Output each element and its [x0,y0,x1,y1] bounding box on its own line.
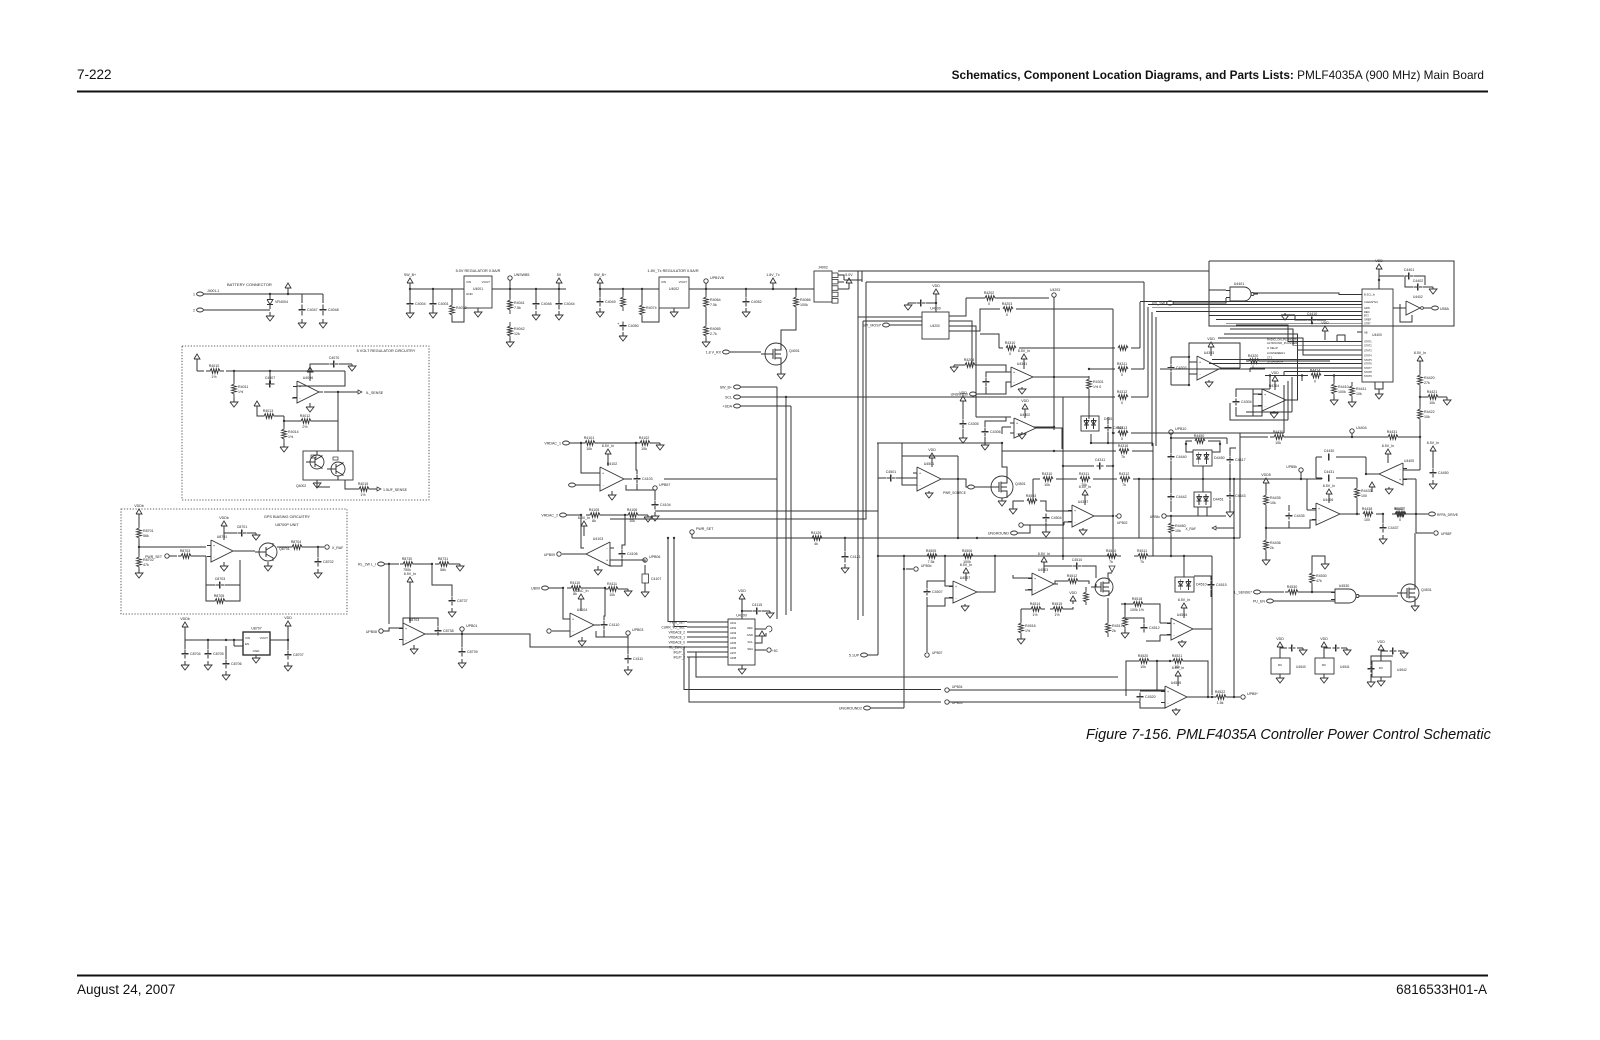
svg-text:R4074: R4074 [646,306,657,310]
svg-text:R4312: R4312 [1119,472,1130,476]
svg-text:8.5V_In: 8.5V_In [1382,444,1394,448]
svg-text:Q4002: Q4002 [296,484,306,488]
svg-text:VIN: VIN [661,280,666,284]
svg-text:C8704: C8704 [190,652,201,656]
svg-text:R4420: R4420 [1424,376,1435,380]
svg-text:U4102: U4102 [607,462,618,466]
svg-text:SCL: SCL [725,396,732,400]
svg-text:X_RAF: X_RAF [332,546,343,550]
svg-text:VR4004: VR4004 [275,300,288,304]
svg-text:U8701: U8701 [217,535,228,539]
svg-text:GND: GND [466,292,474,296]
svg-text:10k: 10k [1044,483,1050,487]
svg-text:7k: 7k [1140,560,1144,564]
svg-text:RL_2W L_I: RL_2W L_I [358,563,376,567]
svg-text:C4104: C4104 [660,503,671,507]
svg-text:8.5V_In: 8.5V_In [578,516,590,520]
svg-text:PWR_SET: PWR_SET [696,527,714,531]
svg-text:U4100: U4100 [736,614,747,618]
svg-text:RX_SW: RX_SW [1152,302,1165,306]
svg-text:R4516: R4516 [1025,624,1036,628]
svg-text:VDD: VDD [1021,399,1029,403]
svg-text:R4512: R4512 [1067,574,1078,578]
svg-text:UPB04: UPB04 [952,685,963,689]
svg-text:R4101: R4101 [584,436,595,440]
svg-text:7k: 7k [1109,560,1113,564]
svg-text:R4065: R4065 [710,327,721,331]
svg-text:C4401: C4401 [1404,268,1415,272]
svg-text:UB09: UB09 [531,587,540,591]
svg-text:R4072: R4072 [456,306,467,310]
svg-text:D4451: D4451 [1213,498,1224,502]
svg-text:R4506: R4506 [962,549,973,553]
svg-text:5.0V REGULATOR 0.5A/R: 5.0V REGULATOR 0.5A/R [456,269,501,273]
svg-text:12k: 12k [514,332,520,336]
svg-text:X_RAF: X_RAF [1185,527,1196,531]
svg-text:10k: 10k [1429,401,1435,405]
svg-text:1.5k: 1.5k [1217,701,1224,705]
svg-text:8.5V_In: 8.5V_In [960,563,972,567]
svg-text:VIN: VIN [245,636,250,640]
svg-text:5 VOLT REGULATOR CIRCUITRY: 5 VOLT REGULATOR CIRCUITRY [357,349,416,353]
svg-text:UPB01: UPB01 [466,624,477,628]
svg-text:6816533H01-A: 6816533H01-A [1396,982,1487,997]
svg-text:PWR_SOURCE: PWR_SOURCE [943,491,966,495]
svg-text:C4301: C4301 [1113,426,1124,430]
svg-text:VDD: VDD [1069,591,1077,595]
svg-text:C4435: C4435 [1294,514,1305,518]
svg-text:U4504: U4504 [1177,613,1188,617]
svg-text:STAT5: STAT5 [1364,358,1372,362]
svg-text:R4310: R4310 [1042,472,1053,476]
svg-text:VDD: VDD [1375,259,1383,263]
svg-text:VOUT: VOUT [679,280,688,284]
svg-text:U4104: U4104 [577,608,588,612]
svg-text:C4306: C4306 [990,430,1001,434]
svg-text:R4433: R4433 [1361,489,1372,493]
svg-text:R4204: R4204 [964,358,975,362]
svg-text:R8705: R8705 [214,594,225,598]
svg-text:8.5V_In: 8.5V_In [602,444,614,448]
svg-text:1%: 1% [1025,629,1031,633]
svg-text:Q8701: Q8701 [279,547,290,551]
svg-text:AIN8: AIN8 [730,656,737,660]
svg-text:GND: GND [747,633,753,637]
svg-text:AIN5: AIN5 [730,641,737,645]
svg-text:C4512: C4512 [1149,626,1160,630]
svg-text:2.7k: 2.7k [710,332,717,336]
svg-text:R4110: R4110 [570,581,580,585]
svg-text:0: 0 [988,302,990,306]
svg-text:UPB09: UPB09 [544,553,555,557]
svg-text:1.8V_Tx REGULATOR 0.5A/R: 1.8V_Tx REGULATOR 0.5A/R [647,269,698,273]
svg-text:C4304: C4304 [1241,400,1252,404]
svg-text:SW_B+: SW_B+ [404,273,416,277]
svg-text:C8737: C8737 [457,599,468,603]
svg-text:0: 0 [1399,518,1401,522]
svg-text:AIN4: AIN4 [730,636,737,640]
svg-text:C4111: C4111 [633,657,643,661]
svg-text:R4514: R4514 [1030,602,1041,606]
svg-text:1.8 V_RX: 1.8 V_RX [706,351,722,355]
svg-text:R4530: R4530 [1316,574,1327,578]
svg-text:R8703: R8703 [180,549,191,553]
svg-text:VDDb: VDDb [180,617,190,621]
svg-text:VDD: VDD [959,391,967,395]
svg-text:U8700P UNIT: U8700P UNIT [275,523,299,527]
svg-text:R4438: R4438 [1362,507,1373,511]
svg-text:2k: 2k [1270,546,1274,550]
svg-text:C4510: C4510 [1072,558,1083,562]
svg-text:PWR_SET: PWR_SET [145,555,163,559]
svg-text:R4014: R4014 [288,430,299,434]
svg-text:VDD: VDD [932,284,940,288]
svg-text:0: 0 [1121,373,1123,377]
svg-text:5V: 5V [557,273,562,277]
svg-text:AIN2: AIN2 [730,626,737,630]
svg-text:8.5V_In: 8.5V_In [1038,552,1050,556]
svg-text:C8738: C8738 [443,629,454,633]
svg-text:1%: 1% [1054,613,1060,617]
svg-text:STAT2: STAT2 [1364,344,1372,348]
svg-text:R4312: R4312 [1117,390,1128,394]
svg-text:VDD: VDD [1207,337,1215,341]
svg-text:R4460: R4460 [1175,524,1186,528]
svg-text:56k: 56k [440,568,446,572]
svg-text:2%: 2% [302,425,308,429]
svg-text:C4052: C4052 [751,300,762,304]
svg-text:R4316: R4316 [1118,444,1129,448]
svg-text:EN: EN [245,642,249,646]
svg-text:R4437: R4437 [1395,507,1406,511]
svg-text:C4303: C4303 [1176,366,1187,370]
svg-text:SPI_MOSI*: SPI_MOSI* [863,324,882,328]
svg-text:R4522: R4522 [1215,690,1226,694]
svg-text:VDD: VDD [928,448,936,452]
svg-text:C8702: C8702 [323,560,334,564]
svg-text:UPB02: UPB02 [1117,521,1128,525]
svg-text:UNSWB5: UNSWB5 [514,273,529,277]
svg-text:10k: 10k [629,519,635,523]
svg-text:VDD: VDD [1377,640,1385,644]
svg-text:C8705: C8705 [213,652,224,656]
svg-text:VRDAC_1: VRDAC_1 [544,442,561,446]
svg-text:UPB08: UPB08 [366,630,377,634]
svg-text:C8701: C8701 [237,525,248,529]
svg-text:10k: 10k [1356,392,1362,396]
svg-text:U4540: U4540 [1296,665,1306,669]
svg-text:R4436: R4436 [1270,541,1281,545]
svg-text:UPB5*: UPB5* [1247,692,1258,696]
svg-text:AIN7: AIN7 [730,651,737,655]
svg-text:J4002: J4002 [818,266,828,270]
svg-text:7k: 7k [1121,455,1125,459]
svg-text:10k: 10k [586,447,592,451]
svg-text:UB5A: UB5A [1440,307,1450,311]
svg-text:10k: 10k [1174,665,1180,669]
svg-text:R4013: R4013 [263,409,274,413]
svg-text:R4011: R4011 [238,385,248,389]
svg-text:R8730: R8730 [402,557,413,561]
svg-text:2: 2 [193,309,195,313]
svg-text:U4400: U4400 [1372,333,1382,337]
svg-text:IL_SENSE*: IL_SENSE* [1233,591,1252,595]
svg-text:U4404: U4404 [1356,426,1367,430]
svg-text:UPB07: UPB07 [932,651,943,655]
svg-text:U4001: U4001 [473,287,483,291]
svg-text:U4406: U4406 [1323,498,1334,502]
svg-text:SW_B+: SW_B+ [720,386,732,390]
svg-text:VRDAC_2: VRDAC_2 [541,514,558,518]
svg-text:VOUT: VOUT [482,280,491,284]
svg-text:C4507: C4507 [932,590,943,594]
svg-text:R4066: R4066 [800,298,811,302]
svg-text:SW_B+: SW_B+ [594,273,606,277]
svg-text:RFPA_DRIVE: RFPA_DRIVE [1437,513,1459,517]
svg-text:U4307: U4307 [1078,500,1089,504]
svg-text:100: 100 [1364,518,1370,522]
svg-text:IRL/P_L: IRL/P_L [673,651,685,655]
svg-text:R4111: R4111 [607,582,617,586]
svg-text:U8707: U8707 [251,627,262,631]
svg-text:10k: 10k [609,593,615,597]
svg-text:C4305: C4305 [968,422,979,426]
svg-text:D4450: D4450 [1214,456,1225,460]
svg-text:1.5UF_SENSE: 1.5UF_SENSE [383,488,408,492]
svg-text:C4440: C4440 [1176,455,1187,459]
svg-text:VRDAC8_0: VRDAC8_0 [669,641,686,645]
svg-text:STAT7: STAT7 [1364,366,1372,370]
svg-text:UPB10: UPB10 [1175,427,1186,431]
svg-text:+SDA: +SDA [723,405,733,409]
svg-text:UPB03: UPB03 [632,628,643,632]
svg-text:IRL/P_2: IRL/P_2 [673,656,685,660]
svg-text:27k: 27k [1424,381,1430,385]
svg-text:C4103: C4103 [642,477,653,481]
svg-text:C4431: C4431 [1324,470,1335,474]
svg-text:R8701: R8701 [143,529,154,533]
svg-text:STRT: STRT [1364,322,1371,326]
svg-text:UPB0b: UPB0b [921,564,932,568]
svg-text:STAT6: STAT6 [1364,362,1372,366]
svg-text:GREF: GREF [1364,318,1372,322]
svg-text:1%: 1% [238,390,244,394]
svg-text:C4110: C4110 [609,623,619,627]
svg-text:UPB57: UPB57 [659,483,670,487]
svg-text:STAT8: STAT8 [1364,370,1372,374]
svg-text:C4450: C4450 [1438,471,1449,475]
svg-text:R4503: R4503 [1026,494,1037,498]
svg-text:C4443: C4443 [1235,494,1246,498]
svg-text:UPB5c: UPB5c [1150,515,1161,519]
svg-text:U4200: U4200 [930,307,941,311]
svg-text:R4521: R4521 [1172,654,1183,658]
svg-text:U4541: U4541 [1340,665,1350,669]
svg-text:ALTROUND_PLUNGER: ALTROUND_PLUNGER [1267,341,1297,345]
svg-text:8.5V_In: 8.5V_In [404,572,416,576]
svg-text:R4421: R4421 [1427,390,1438,394]
svg-text:AB: AB [1364,330,1368,334]
svg-text:R4064: R4064 [710,298,721,302]
svg-text:R4012: R4012 [300,414,311,418]
svg-text:0: 0 [1252,365,1254,369]
svg-text:100k 1%: 100k 1% [1130,608,1145,612]
svg-text:R4203: R4203 [1002,302,1013,306]
svg-text:U4002: U4002 [669,287,679,291]
svg-text:R4450: R4450 [1194,434,1205,438]
svg-text:GPS BIASING CIRCUITRY: GPS BIASING CIRCUITRY [264,515,311,519]
svg-text:7k: 7k [1122,483,1126,487]
svg-text:GRN: GRN [1364,306,1370,310]
svg-text:U4303: U4303 [1204,351,1215,355]
svg-text:R4320: R4320 [1248,354,1259,358]
svg-text:10k: 10k [1140,665,1146,669]
svg-text:R4515: R4515 [1052,602,1063,606]
svg-text:J4001-1: J4001-1 [207,289,219,293]
svg-text:C4001: C4001 [438,302,449,306]
svg-text:10k: 10k [1275,441,1281,445]
svg-text:U4402: U4402 [1413,295,1423,299]
svg-text:BT2: BT2 [1364,314,1369,318]
svg-text:VRDAC8_2: VRDAC8_2 [669,631,686,635]
svg-text:LCD/GREEN1: LCD/GREEN1 [1267,351,1285,355]
svg-text:8k: 8k [592,519,596,523]
svg-text:VDD: VDD [738,589,746,593]
svg-text:8.5V_In: 8.5V_In [1178,598,1190,602]
svg-text:5.0V: 5.0V [845,273,853,277]
svg-text:10k: 10k [1424,415,1430,419]
svg-text:R4505: R4505 [926,549,937,553]
svg-text:R4414: R4414 [1310,369,1321,373]
svg-text:0: 0 [1009,352,1011,356]
svg-text:C4106: C4106 [627,552,638,556]
svg-text:4k: 4k [814,542,818,546]
svg-text:VDD: VDD [1320,637,1328,641]
svg-text:100k: 100k [1338,390,1346,394]
svg-text:R4410: R4410 [1338,385,1349,389]
svg-text:10k: 10k [641,447,647,451]
svg-text:U4401: U4401 [1234,282,1245,286]
svg-text:STAT1: STAT1 [1364,340,1372,344]
svg-text:C8739: C8739 [467,650,478,654]
svg-text:BATTERY CONNECTOR: BATTERY CONNECTOR [227,282,272,287]
svg-text:R4041: R4041 [514,301,525,305]
svg-text:U4301: U4301 [1017,362,1028,366]
svg-text:R4042: R4042 [514,327,525,331]
svg-text:C4049: C4049 [605,300,616,304]
svg-text:R4517: R4517 [1112,624,1123,628]
svg-text:R8704: R8704 [291,540,302,544]
svg-text:R4106: R4106 [627,508,638,512]
svg-text:100k: 100k [800,303,808,307]
svg-text:R4105: R4105 [589,508,600,512]
svg-text:70k: 70k [1081,483,1087,487]
svg-text:C8703: C8703 [215,577,226,581]
svg-text:C4044: C4044 [564,302,575,306]
svg-text:1%: 1% [360,493,366,497]
svg-text:R4520: R4520 [1138,654,1149,658]
svg-text:C4050: C4050 [628,324,639,328]
svg-text:August 24, 2007: August 24, 2007 [77,982,175,997]
svg-text:47k: 47k [1316,579,1322,583]
svg-text:0: 0 [1006,313,1008,317]
svg-text:R4431: R4431 [1387,430,1398,434]
svg-text:C4430: C4430 [1324,449,1335,453]
svg-text:0: 0 [1314,380,1316,384]
svg-text:RL_2W L_I: RL_2W L_I [669,646,685,650]
svg-text:47k: 47k [143,563,149,567]
svg-text:U4200: U4200 [930,324,940,328]
svg-text:R4015: R4015 [358,482,369,486]
svg-text:AIN6: AIN6 [730,646,737,650]
svg-text:8.5V_In: 8.5V_In [1427,441,1439,445]
svg-text:1: 1 [193,293,195,297]
svg-text:R4310: R4310 [1005,341,1016,345]
svg-text:C4107: C4107 [651,577,661,581]
svg-text:C4501: C4501 [886,470,897,474]
svg-text:Q4531: Q4531 [1421,588,1432,592]
svg-text:VOUT: VOUT [260,636,269,640]
svg-text:C4311: C4311 [1095,458,1105,462]
svg-text:R4435: R4435 [1270,496,1281,500]
svg-text:STAT9: STAT9 [1364,374,1372,378]
svg-text:7-222: 7-222 [77,67,112,82]
svg-text:VRDAC8_1: VRDAC8_1 [669,636,686,640]
svg-text:+5C: +5C [772,649,779,653]
svg-text:0: 0 [1121,437,1123,441]
svg-text:R4422: R4422 [1424,410,1435,414]
svg-text:Schematics, Component Location: Schematics, Component Location Diagrams,… [952,68,1484,82]
svg-text:1% 0: 1% 0 [1093,385,1101,389]
svg-text:7.5k: 7.5k [710,303,717,307]
svg-text:C4121: C4121 [850,555,861,559]
svg-text:1%: 1% [1032,613,1038,617]
svg-text:VDD: VDD [284,616,292,620]
svg-text:2k: 2k [1112,629,1116,633]
svg-text:C4115: C4115 [752,603,762,607]
svg-text:Figure 7-156. PMLF4035A Contro: Figure 7-156. PMLF4035A Controller Power… [1086,727,1492,743]
svg-text:C8706: C8706 [231,662,242,666]
svg-text:CLEAN/T21: CLEAN/T21 [1364,300,1378,304]
svg-text:Q4501: Q4501 [1015,482,1026,486]
svg-text:C4004: C4004 [415,302,426,306]
svg-text:U4501: U4501 [924,462,935,466]
svg-text:C4437: C4437 [1388,526,1399,530]
svg-text:5.1UP: 5.1UP [849,654,860,658]
svg-text:UPB1V8: UPB1V8 [710,276,724,280]
svg-text:D4510: D4510 [1196,583,1207,587]
svg-text:0: 0 [1121,401,1123,405]
svg-text:UPB5F: UPB5F [1441,532,1452,536]
svg-text:REF: REF [747,626,753,630]
svg-text:U4006: U4006 [303,376,314,380]
svg-text:VDDb: VDDb [134,504,144,508]
svg-text:U4507: U4507 [960,576,971,580]
svg-text:VDD: VDD [1271,371,1279,375]
svg-text:VIN: VIN [466,280,471,284]
svg-text:R4202: R4202 [984,291,995,295]
svg-text:8.5V_In: 8.5V_In [1323,484,1335,488]
svg-text:SDA: SDA [747,647,753,651]
svg-text:U4503: U4503 [1038,568,1049,572]
svg-text:UPB5b: UPB5b [1286,465,1297,469]
svg-text:VDD: VDD [1276,637,1284,641]
svg-text:8.5V_In: 8.5V_In [1018,349,1030,353]
svg-text:R4311: R4311 [1117,362,1127,366]
svg-text:GND: GND [253,649,261,653]
svg-text:PU_EN: PU_EN [1253,600,1265,604]
svg-text:R4311: R4311 [1079,472,1089,476]
